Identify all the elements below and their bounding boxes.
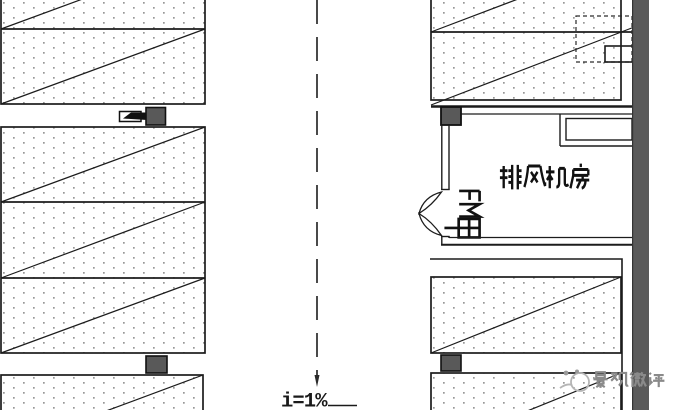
svg-text:i=1%: i=1% — [281, 391, 328, 410]
